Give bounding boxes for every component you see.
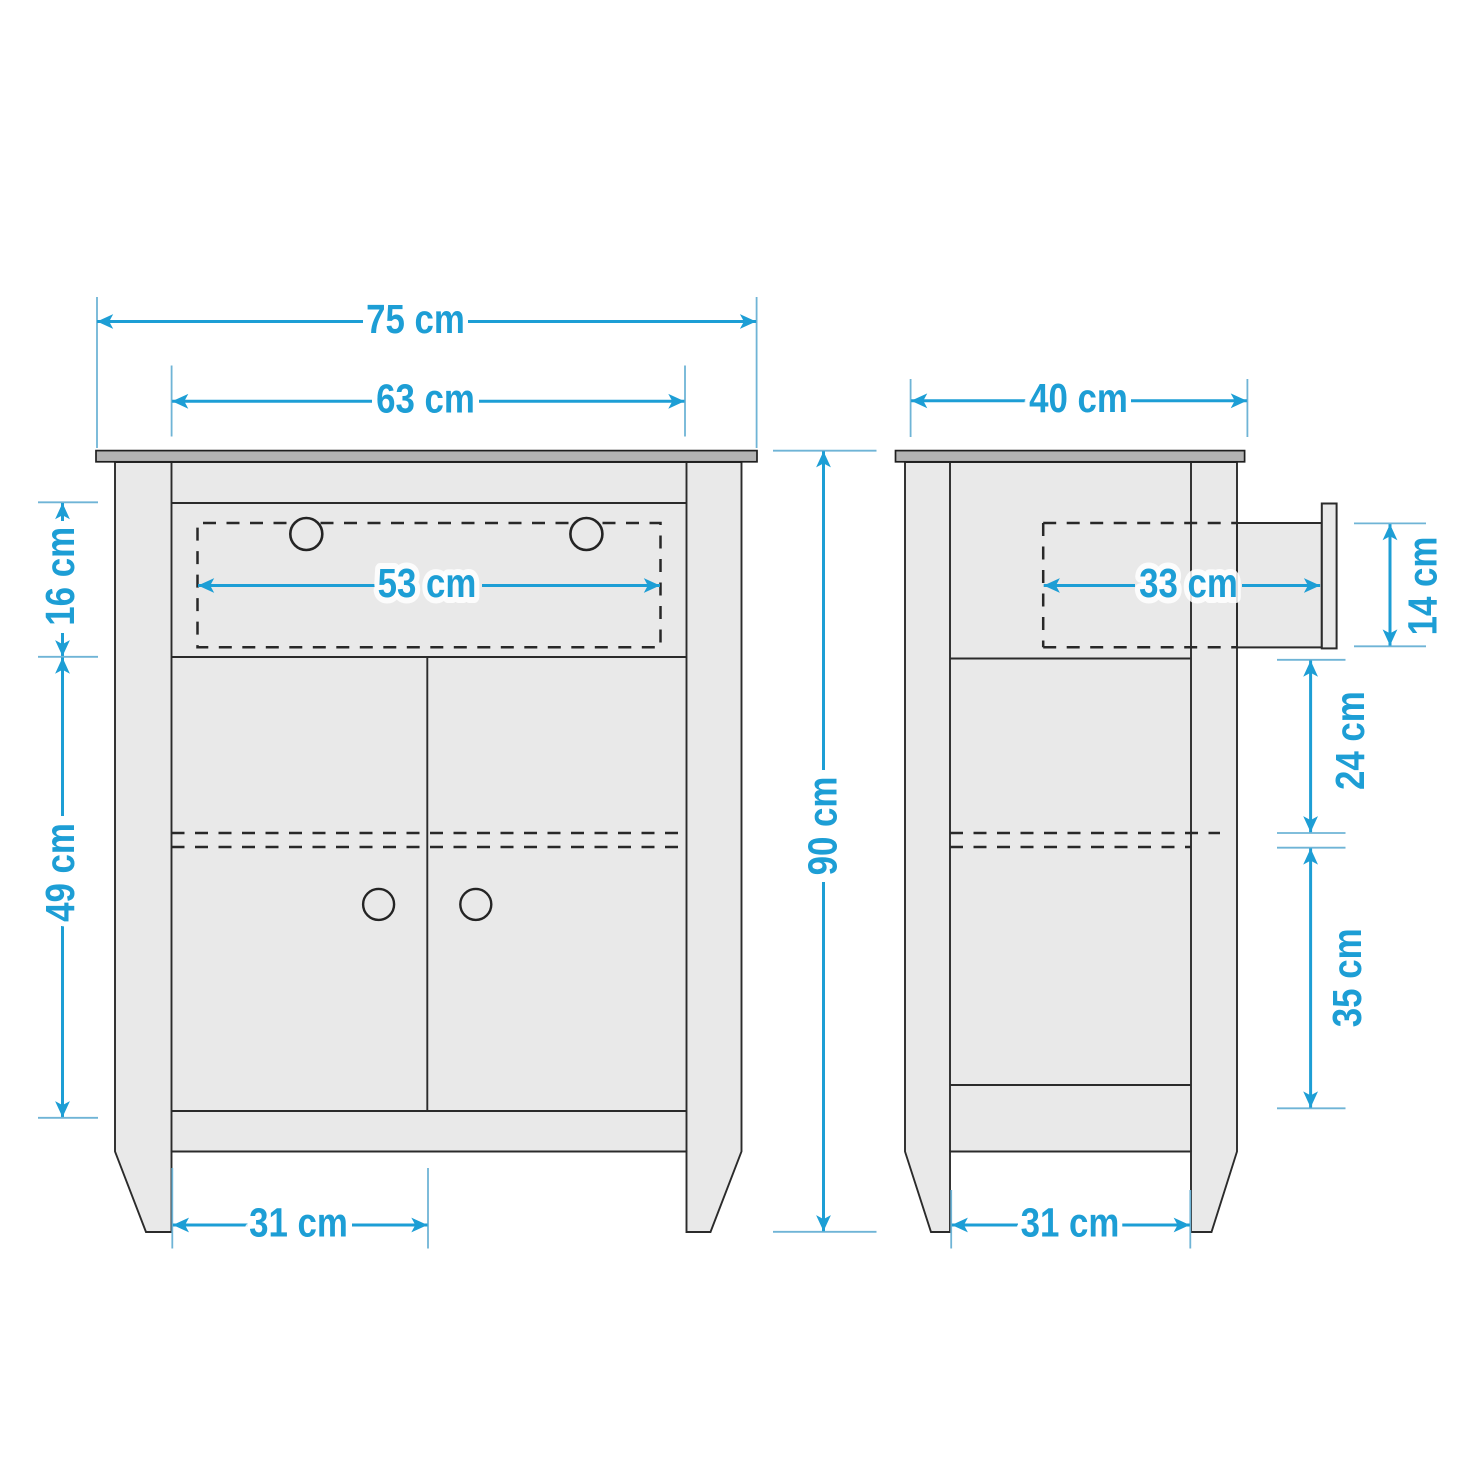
svg-text:53 cm: 53 cm [378, 561, 477, 606]
svg-text:24 cm: 24 cm [1328, 691, 1373, 790]
svg-text:31 cm: 31 cm [1021, 1201, 1120, 1246]
svg-text:75 cm: 75 cm [366, 297, 465, 342]
svg-text:31 cm: 31 cm [249, 1201, 348, 1246]
svg-text:35 cm: 35 cm [1325, 928, 1370, 1027]
svg-text:40 cm: 40 cm [1029, 377, 1128, 422]
svg-text:49 cm: 49 cm [38, 823, 83, 922]
svg-text:14 cm: 14 cm [1401, 537, 1446, 636]
svg-text:90 cm: 90 cm [801, 777, 846, 876]
svg-text:16 cm: 16 cm [38, 527, 83, 626]
svg-text:33 cm: 33 cm [1139, 561, 1238, 606]
svg-text:63 cm: 63 cm [376, 377, 475, 422]
